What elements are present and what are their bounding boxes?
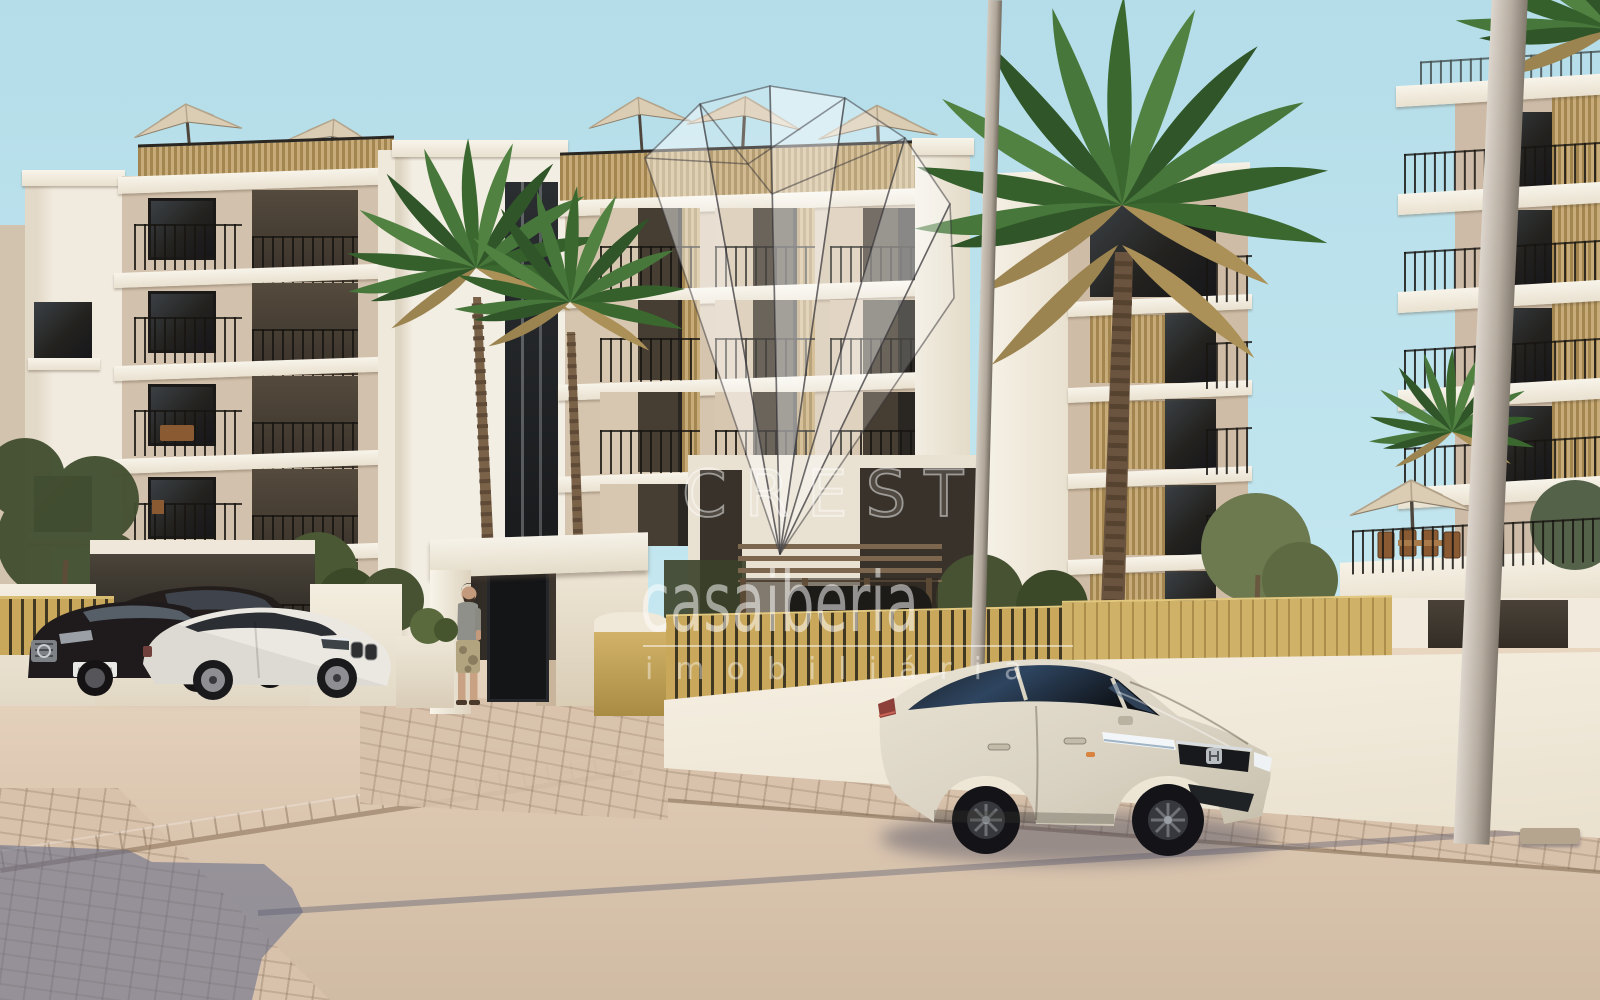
beige-honda-civic-sedan [868,648,1283,858]
architectural-render-scene: CREST casaiberia imobiliária [0,0,1600,1000]
parked-cars-left [15,578,465,703]
entrance-door [487,564,549,702]
vegetation-layer [0,0,1600,1000]
